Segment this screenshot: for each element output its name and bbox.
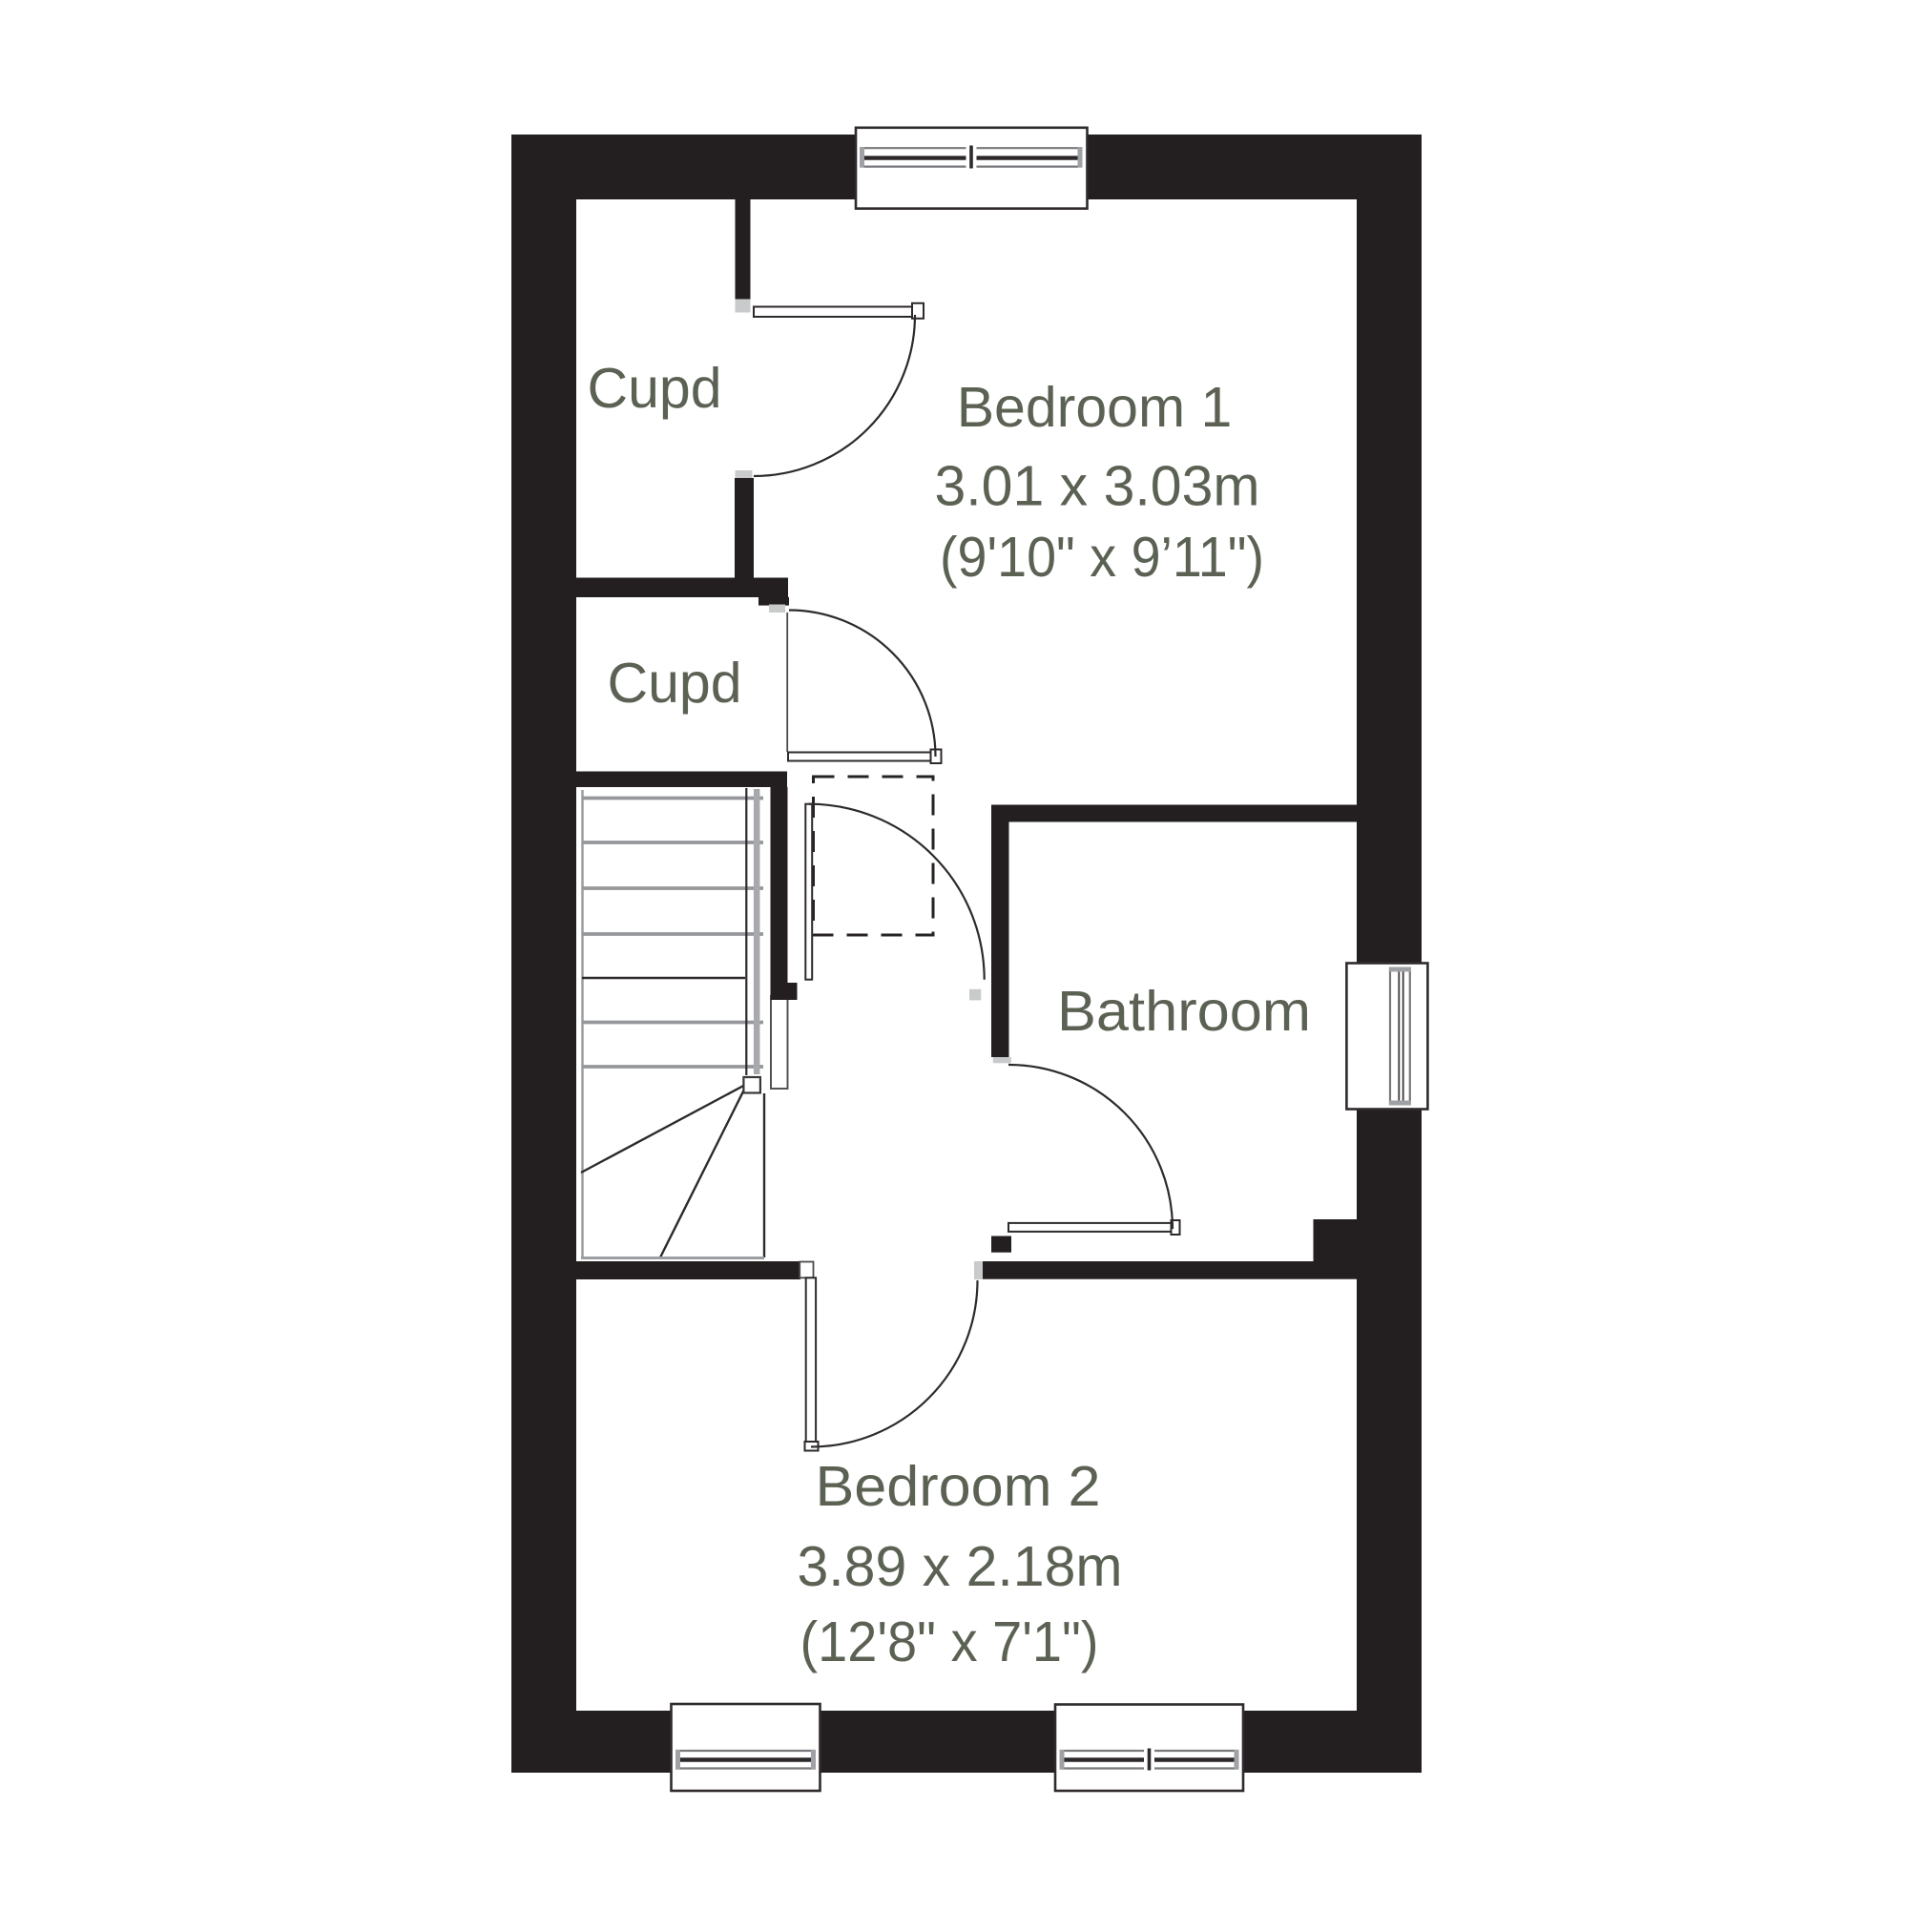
svg-text:Cupd: Cupd [587,357,721,420]
svg-text:(9'10" x 9’11"): (9'10" x 9’11") [940,526,1264,589]
svg-text:Cupd: Cupd [607,652,741,715]
svg-text:Bedroom 1: Bedroom 1 [957,376,1233,439]
svg-text:3.89 x 2.18m: 3.89 x 2.18m [797,1535,1122,1598]
svg-text:3.01 x 3.03m: 3.01 x 3.03m [934,455,1259,518]
svg-text:Bathroom: Bathroom [1057,980,1311,1043]
svg-text:(12'8" x 7'1"): (12'8" x 7'1") [800,1610,1099,1673]
svg-text:Bedroom 2: Bedroom 2 [816,1455,1101,1518]
